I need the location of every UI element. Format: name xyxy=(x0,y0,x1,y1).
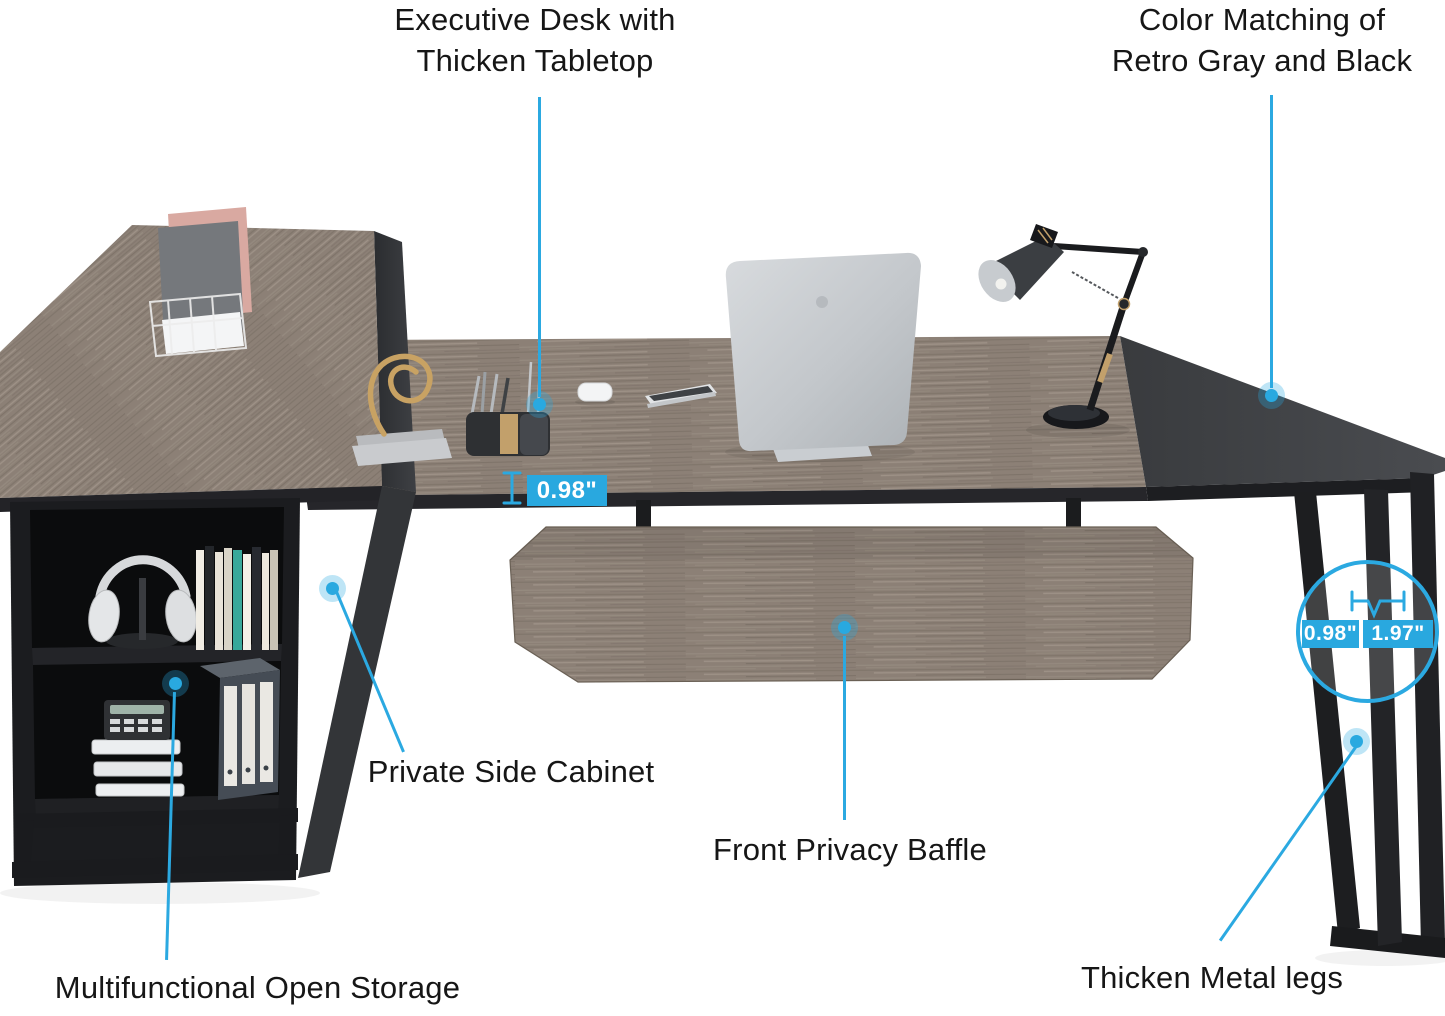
caption-executive-desk: Executive Desk with Thicken Tabletop xyxy=(345,0,725,82)
mouse xyxy=(575,383,615,406)
cabinet-shadow xyxy=(0,882,320,904)
books xyxy=(196,546,278,650)
thickness-measure-icon xyxy=(500,467,524,509)
metal-legs xyxy=(1294,472,1445,958)
caption-front-privacy-baffle: Front Privacy Baffle xyxy=(680,830,1020,871)
caption-line: Color Matching of xyxy=(1082,0,1442,41)
caption-thicken-metal-legs: Thicken Metal legs xyxy=(1042,958,1382,999)
leg-dimension-marks-icon xyxy=(1338,588,1416,622)
caption-line: Executive Desk with xyxy=(345,0,725,41)
leader-dot-executive-desk xyxy=(533,398,546,411)
lamp-bulb xyxy=(996,279,1007,290)
leader-line-executive-desk xyxy=(538,97,541,397)
monitor-back xyxy=(726,253,921,451)
privacy-baffle xyxy=(510,498,1193,682)
caption-line: Thicken Tabletop xyxy=(345,41,725,82)
leader-dot-thicken-metal-legs xyxy=(1350,735,1363,748)
file-rack xyxy=(150,207,252,356)
baffle-bracket-left xyxy=(636,500,651,530)
baffle-top-shade xyxy=(510,527,1193,560)
baffle-bracket-right xyxy=(1066,498,1081,530)
leg-depth-badge: 1.97" xyxy=(1363,620,1433,648)
leader-dot-color-matching xyxy=(1265,389,1278,402)
leader-dot-front-privacy-baffle xyxy=(838,621,851,634)
cabinet-side-panel xyxy=(298,486,416,878)
leader-dot-multifunctional-open-storage xyxy=(169,677,182,690)
leader-dot-private-side-cabinet xyxy=(326,582,339,595)
leg-width-badge: 0.98" xyxy=(1302,620,1359,648)
leg-front-post xyxy=(1364,489,1402,946)
monitor xyxy=(725,253,921,462)
caption-multifunctional-open-storage: Multifunctional Open Storage xyxy=(5,968,510,1009)
leader-line-front-privacy-baffle xyxy=(843,636,846,820)
calculator xyxy=(104,700,170,740)
thickness-badge: 0.98" xyxy=(527,475,607,506)
leader-line-color-matching xyxy=(1270,95,1273,388)
caption-color-matching: Color Matching of Retro Gray and Black xyxy=(1082,0,1442,82)
caption-line: Retro Gray and Black xyxy=(1082,41,1442,82)
leg-back-post xyxy=(1410,472,1445,946)
caption-private-side-cabinet: Private Side Cabinet xyxy=(338,752,684,793)
product-annotation-image: Executive Desk with Thicken Tabletop Col… xyxy=(0,0,1445,1016)
desktop-dark-section xyxy=(1120,336,1445,487)
leg-diagonal xyxy=(1294,492,1360,934)
monitor-logo xyxy=(816,296,828,308)
